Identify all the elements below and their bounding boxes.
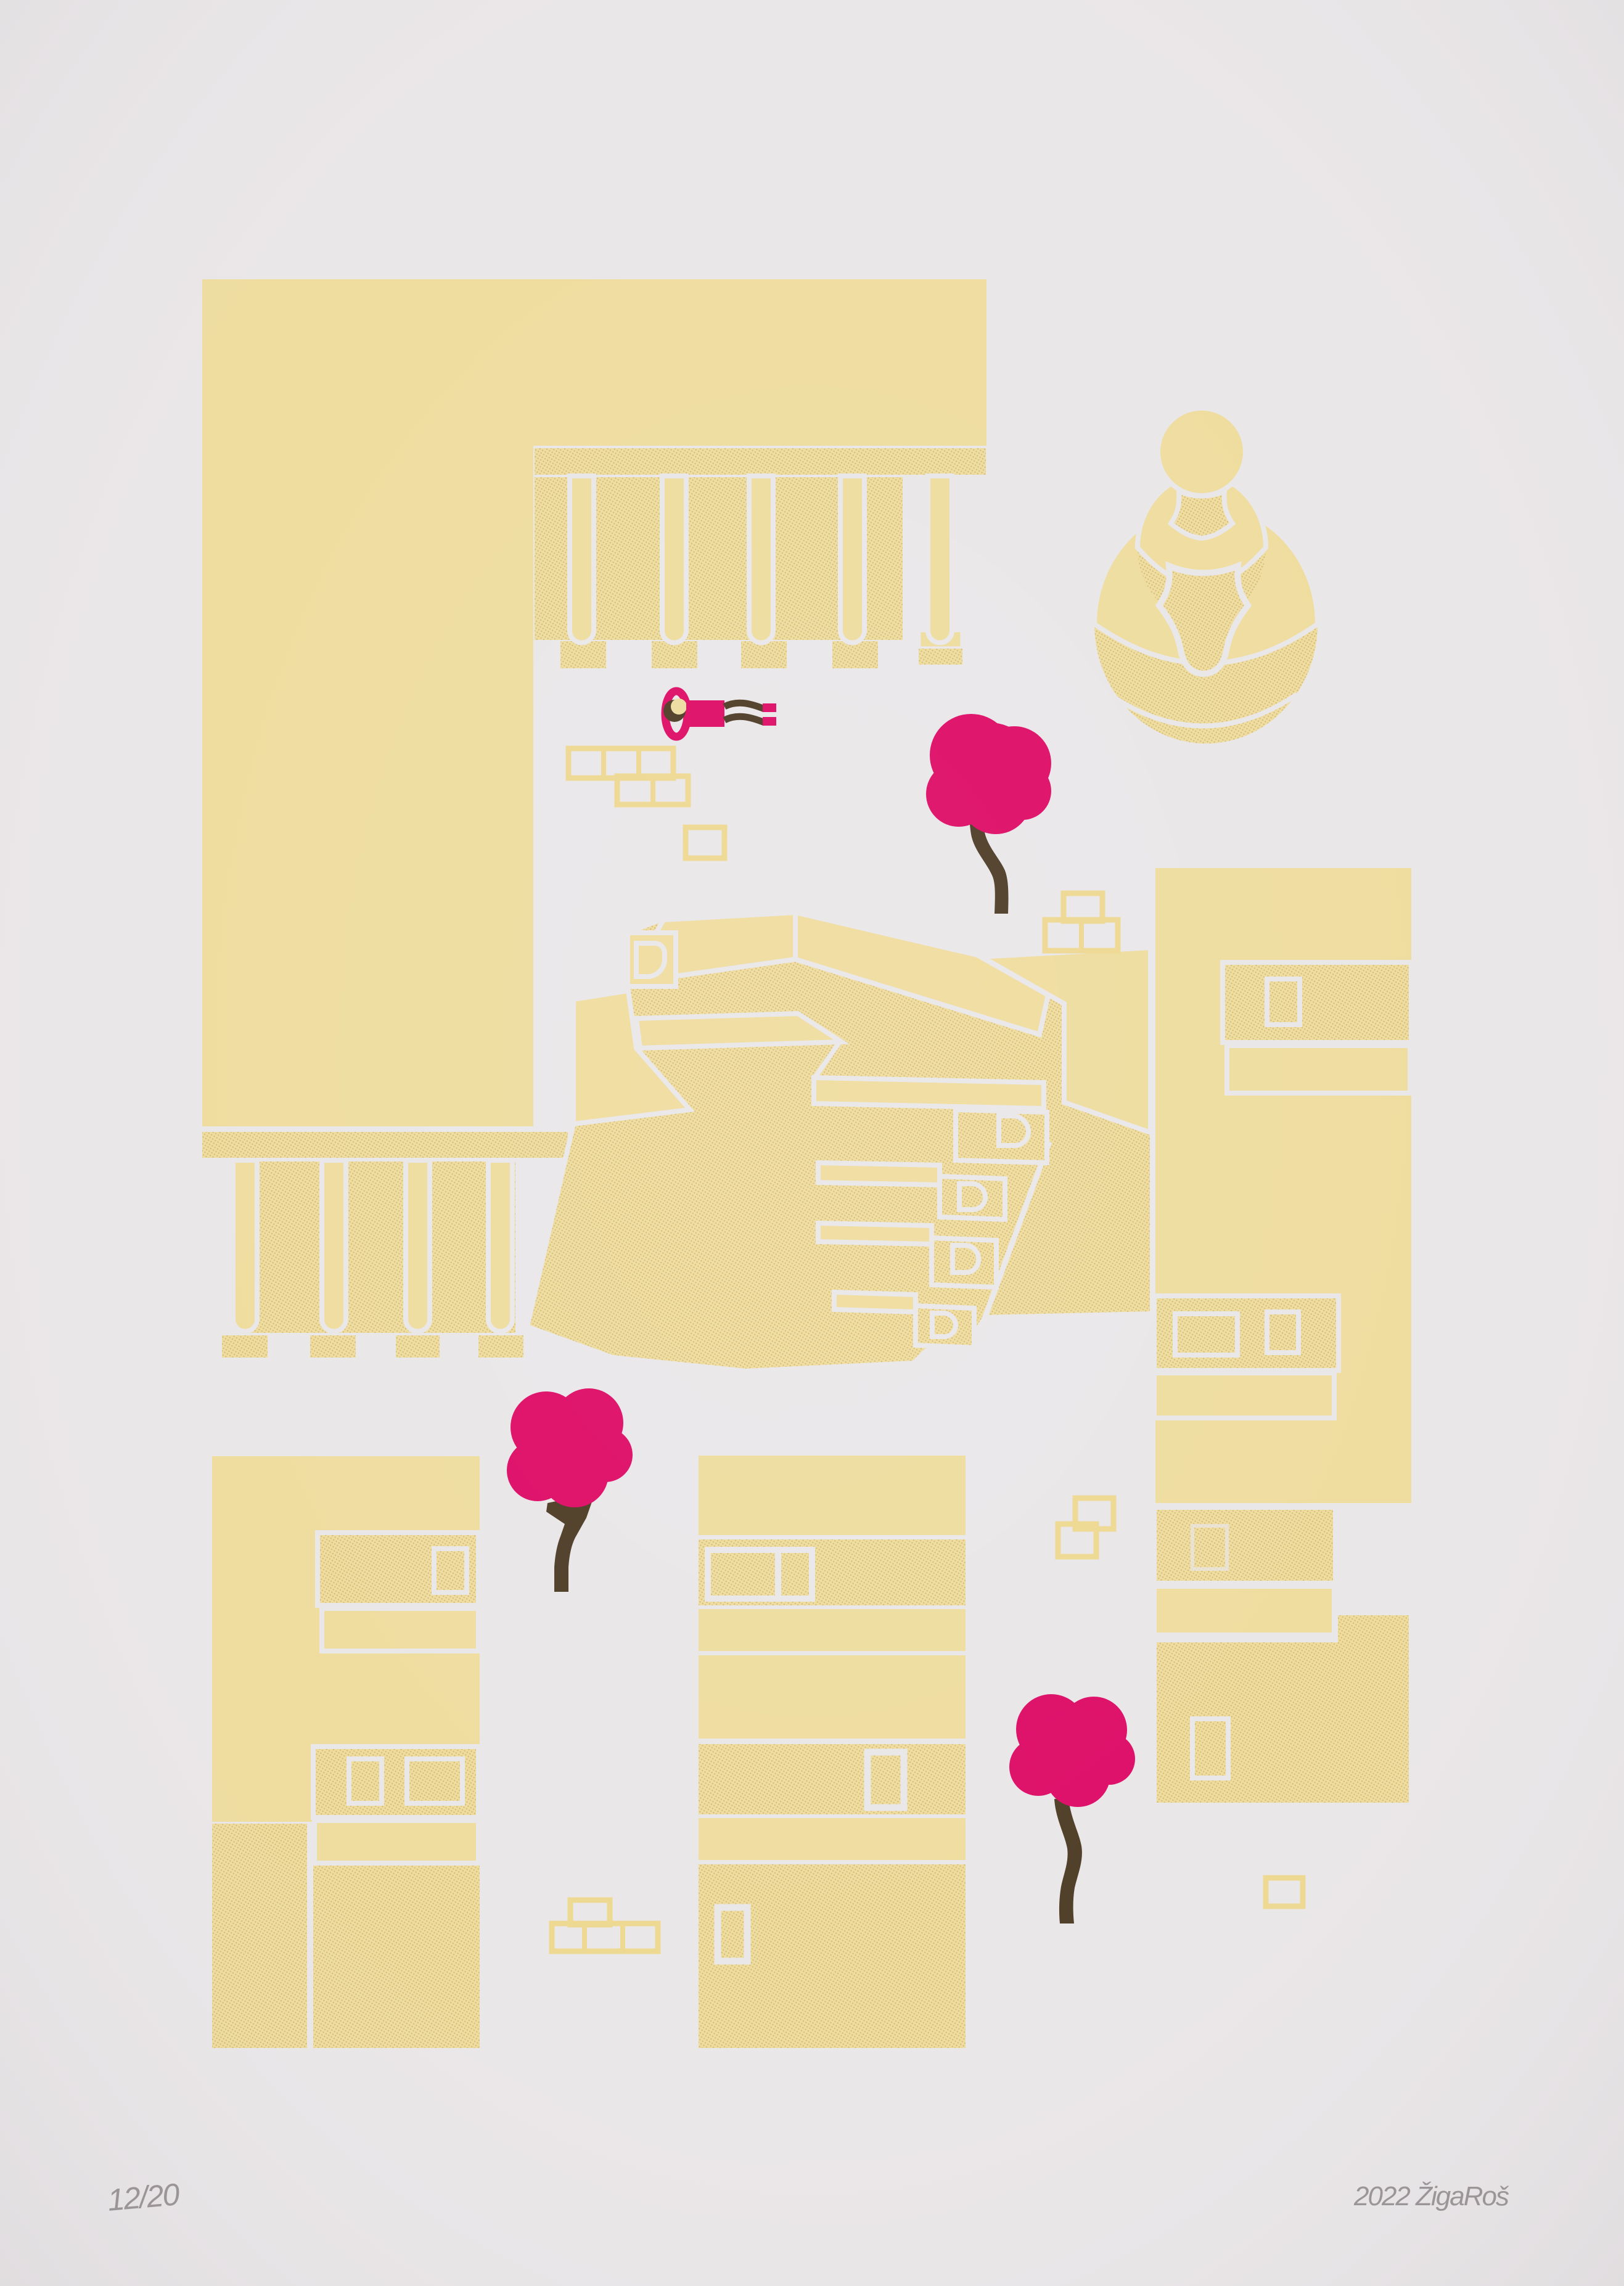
svg-text:2022 ŽigaRoš: 2022 ŽigaRoš [1353, 2181, 1509, 2211]
svg-text:12/20: 12/20 [106, 2177, 181, 2218]
